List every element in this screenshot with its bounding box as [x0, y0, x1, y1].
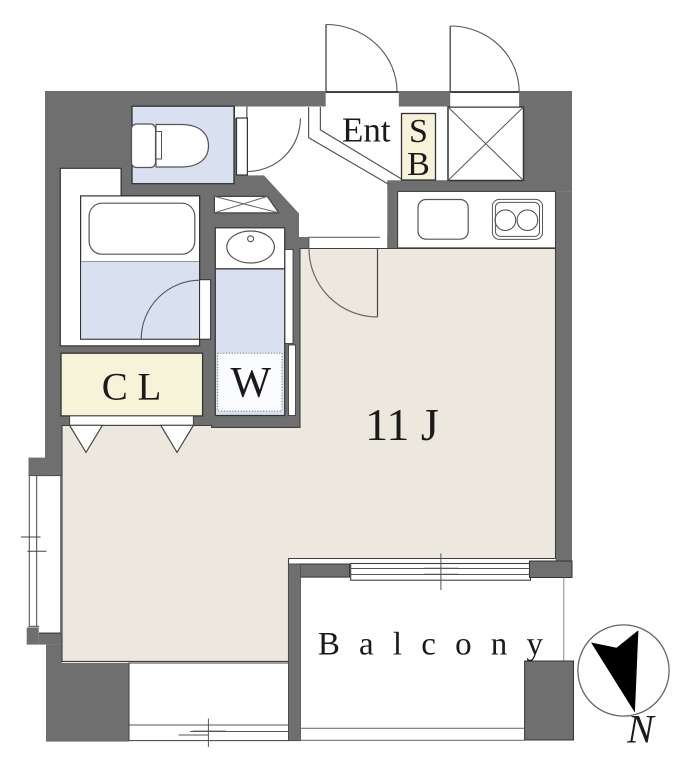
svg-text:W: W: [231, 360, 272, 407]
svg-text:11 J: 11 J: [365, 399, 439, 450]
svg-text:S: S: [409, 113, 428, 150]
svg-text:Balcony: Balcony: [318, 627, 562, 663]
svg-text:B: B: [407, 146, 430, 183]
svg-text:Ent: Ent: [342, 111, 391, 150]
svg-text:C L: C L: [102, 365, 162, 408]
svg-text:N: N: [626, 707, 656, 752]
